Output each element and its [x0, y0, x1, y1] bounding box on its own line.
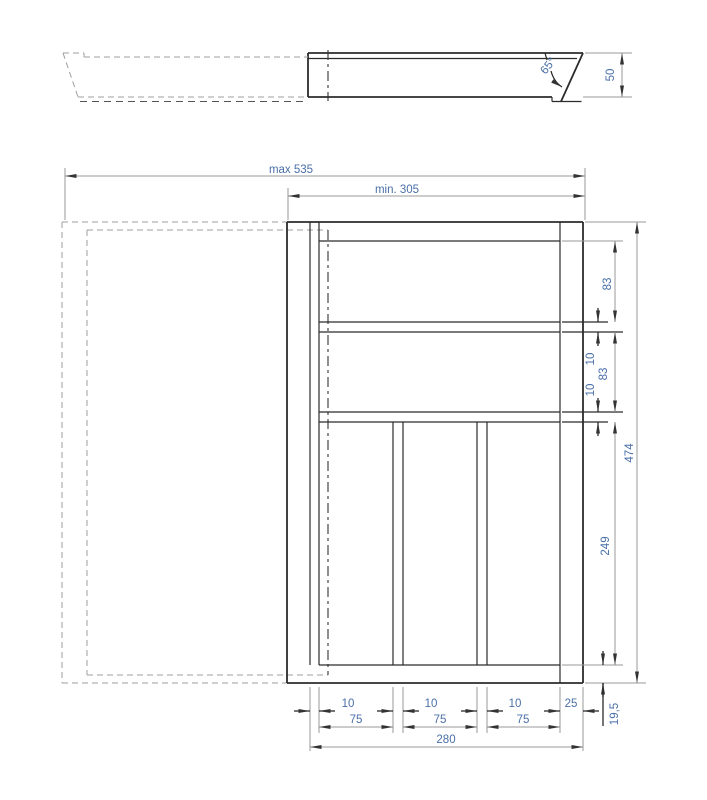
dims-bottom: 10 10 10 25 75 75 75 280	[294, 687, 599, 751]
dim-slot-label-2: 75	[434, 714, 447, 726]
dim-comp1-height: 83	[602, 241, 615, 322]
dim-slot-label-1: 75	[350, 714, 363, 726]
dim-gap-label-1: 10	[342, 698, 355, 710]
dim-gap1: 10	[585, 308, 598, 365]
dim-max-width: max 535	[65, 164, 585, 220]
dim-body-width: 280	[310, 734, 583, 747]
dim-bottom-section-label: 249	[600, 536, 612, 555]
dim-total-height: 474	[624, 222, 637, 683]
plan-solid-outline	[287, 222, 583, 683]
dim-min-width-label: min. 305	[375, 184, 419, 196]
dim-comp1-height-label: 83	[602, 278, 614, 291]
dim-gap-row: 10 10 10 25	[294, 698, 599, 711]
dim-gap2: 10	[585, 384, 598, 436]
dim-bottom-wall-label: 19,5	[609, 703, 621, 725]
dim-profile-height: 50	[583, 53, 632, 97]
side-view-solid-outline	[308, 53, 583, 102]
dim-profile-height-label: 50	[605, 69, 617, 82]
dim-body-width-label: 280	[436, 734, 455, 746]
technical-drawing-cutlery-tray: 50 65°	[0, 0, 707, 800]
side-view: 50 65°	[63, 50, 632, 102]
ext-left-slant	[63, 53, 78, 97]
dim-total-height-label: 474	[624, 443, 636, 463]
dim-max-width-label: max 535	[269, 164, 313, 176]
plan-view	[62, 222, 583, 683]
dim-comp2-height-label: 83	[598, 368, 610, 381]
dim-min-width: min. 305	[288, 184, 585, 220]
plan-dividers	[319, 322, 560, 665]
side-view-dashed-extension	[63, 50, 328, 102]
dim-slot-row: 75 75 75	[319, 714, 560, 727]
angle-leader-arc	[551, 71, 562, 87]
profile-slanted-end	[561, 53, 583, 102]
dim-gap2-label: 10	[585, 384, 597, 397]
dim-gap-label-2: 10	[425, 698, 438, 710]
plan-dashed-max-outline	[62, 222, 328, 683]
dim-slot-label-3: 75	[517, 714, 530, 726]
dim-bottom-section-height: 249	[600, 422, 615, 665]
dim-comp2-height: 83	[598, 332, 615, 412]
drawing-svg: 50 65°	[0, 0, 707, 800]
plan-walls	[310, 222, 560, 683]
dims-right-side: 83 10 83 10 249 474 19,5	[562, 222, 646, 726]
dim-gap-label-3: 10	[509, 698, 522, 710]
dim-bottom-wall: 19,5	[603, 651, 621, 726]
dim-gap1-label: 10	[585, 353, 597, 366]
dim-right-wall-label: 25	[565, 698, 578, 710]
